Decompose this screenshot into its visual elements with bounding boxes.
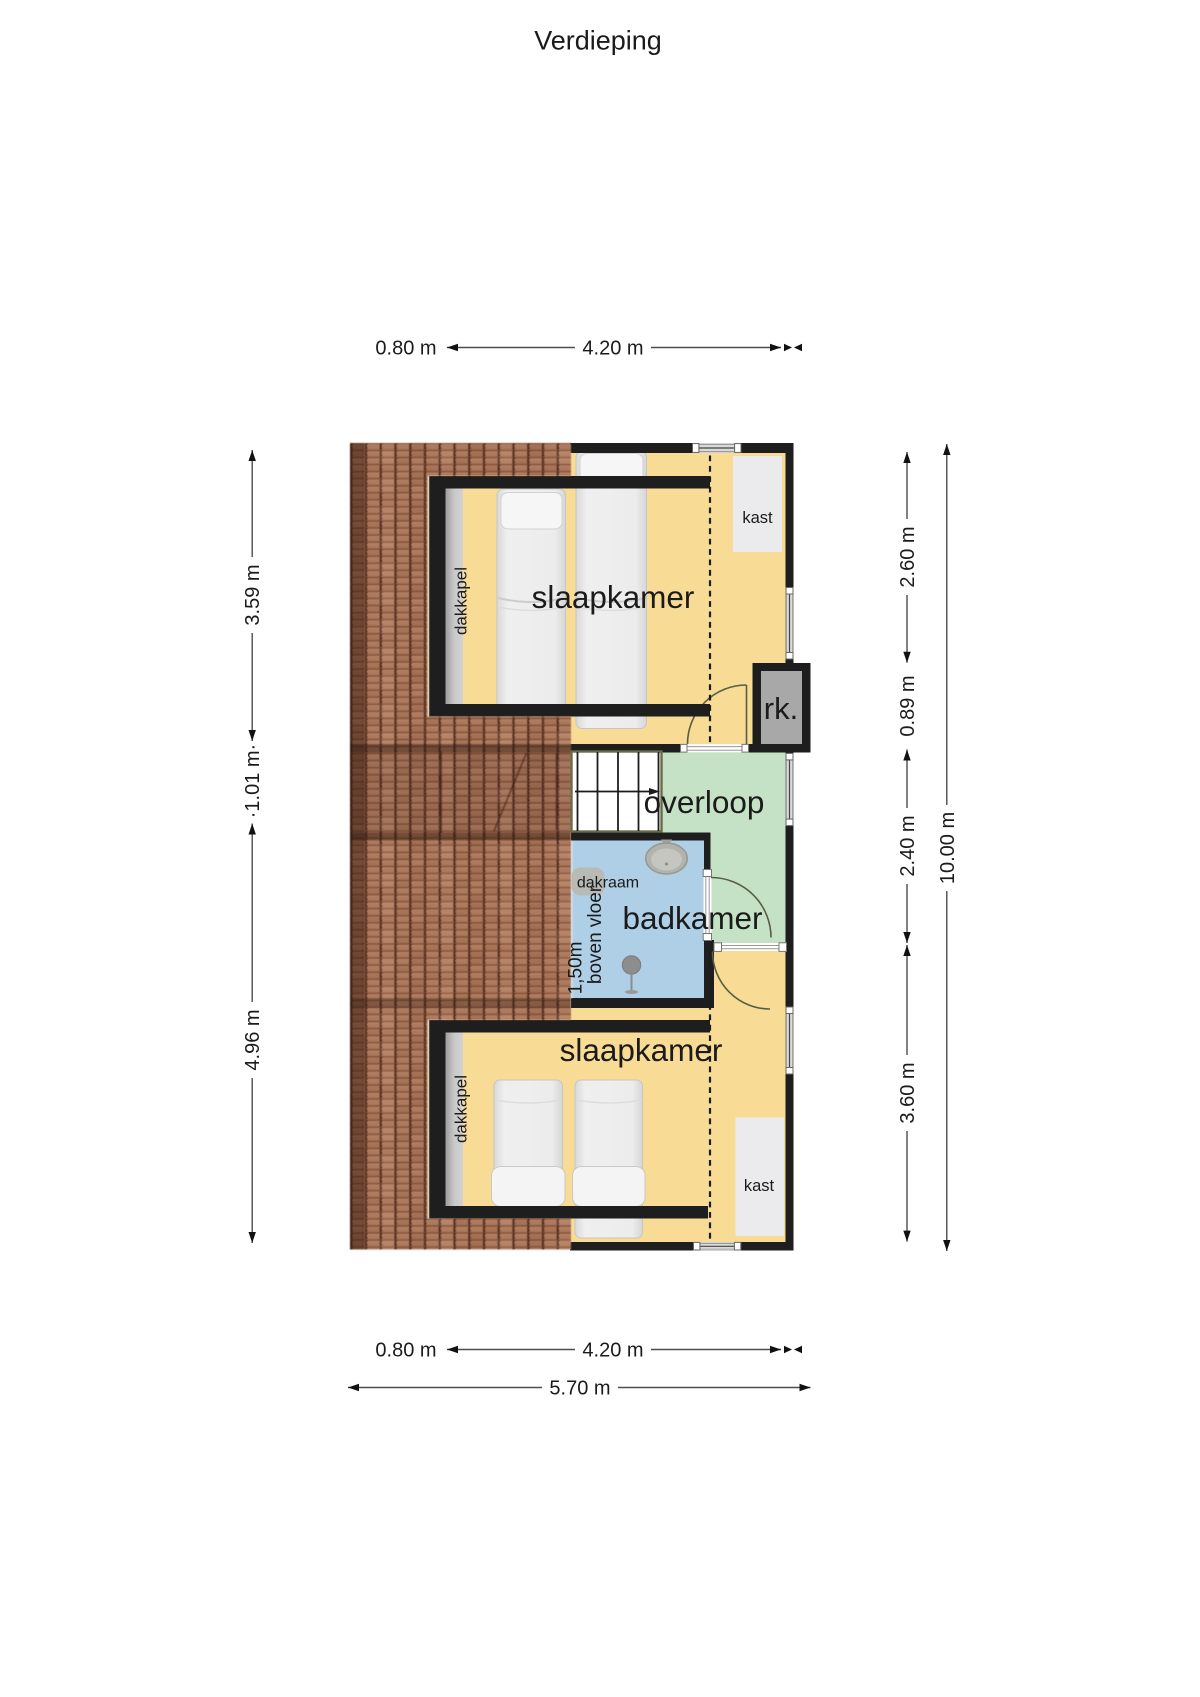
svg-text:0.80 m: 0.80 m (375, 1340, 436, 1362)
svg-text:3.59 m: 3.59 m (242, 564, 264, 625)
svg-text:1,50m: 1,50m (566, 942, 587, 995)
svg-text:0.80 m: 0.80 m (375, 338, 436, 360)
svg-text:kast: kast (742, 509, 773, 527)
svg-text:slaapkamer: slaapkamer (560, 1032, 723, 1068)
svg-text:4.20 m: 4.20 m (582, 338, 643, 360)
svg-text:rk.: rk. (764, 691, 798, 726)
svg-text:5.70 m: 5.70 m (549, 1378, 610, 1400)
svg-text:badkamer: badkamer (622, 900, 762, 936)
svg-text:4.96 m: 4.96 m (242, 1009, 264, 1070)
svg-text:4.20 m: 4.20 m (582, 1340, 643, 1362)
svg-text:dakkapel: dakkapel (452, 1075, 471, 1143)
svg-text:0.89 m: 0.89 m (897, 675, 919, 736)
svg-text:overloop: overloop (644, 784, 765, 820)
svg-text:2.40 m: 2.40 m (897, 815, 919, 876)
svg-text:Verdieping: Verdieping (534, 26, 662, 56)
svg-text:dakkapel: dakkapel (452, 567, 471, 635)
svg-text:slaapkamer: slaapkamer (532, 579, 695, 615)
svg-text:2.60 m: 2.60 m (897, 526, 919, 587)
svg-text:10.00 m: 10.00 m (937, 812, 959, 884)
svg-text:kast: kast (744, 1177, 775, 1195)
svg-text:·1.01 m·: ·1.01 m· (242, 744, 264, 818)
svg-text:boven vloer: boven vloer (585, 885, 606, 984)
svg-text:3.60 m: 3.60 m (897, 1062, 919, 1123)
